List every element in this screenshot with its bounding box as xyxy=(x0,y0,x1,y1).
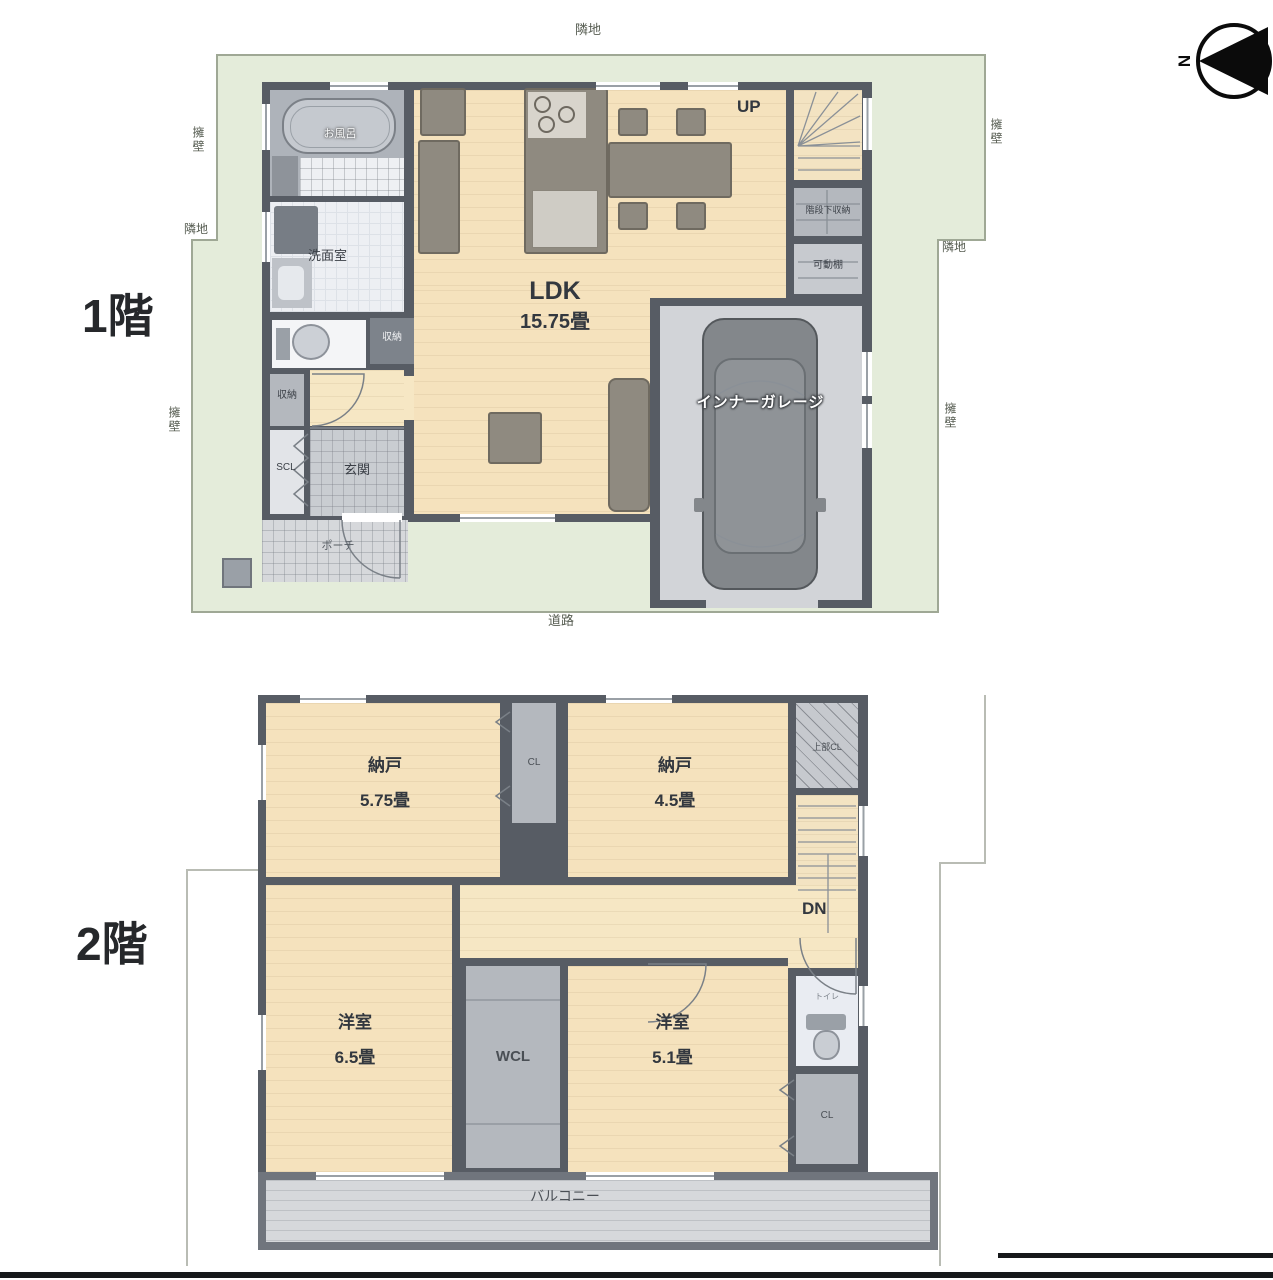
stove-burner-1 xyxy=(534,96,551,113)
site-post xyxy=(222,558,252,588)
floor1-title: 1階 xyxy=(82,288,154,346)
label-closet-left: 収納 xyxy=(266,390,308,403)
site-label-road: 道路 xyxy=(548,613,574,629)
toilet-2f-tank xyxy=(806,1014,846,1030)
car-mirror-right xyxy=(816,498,826,512)
car-mirror-left xyxy=(694,498,704,512)
window-stairs2-right xyxy=(859,806,868,856)
door-gap-front xyxy=(342,513,402,522)
label-youshitsu2-size: 5.1畳 xyxy=(585,1047,760,1068)
site-label-left-lower: 擁壁 xyxy=(166,406,181,434)
label-genkan: 玄関 xyxy=(312,462,402,478)
car-roof xyxy=(714,358,806,554)
site-label-left-upper: 擁壁 xyxy=(190,126,205,154)
dining-table xyxy=(608,142,732,198)
site-label-left-mid: 隣地 xyxy=(184,222,208,237)
refrigerator xyxy=(420,88,466,136)
window-youshitsu1-bottom xyxy=(316,1172,444,1180)
room-hall-1f xyxy=(310,370,404,426)
kitchen-sink xyxy=(532,190,598,248)
label-garage: インナーガレージ xyxy=(668,394,853,413)
label-cl1: CL xyxy=(512,757,556,770)
room-youshitsu2 xyxy=(568,966,788,1172)
window-youshitsu1-left xyxy=(258,1015,266,1070)
label-youshitsu1: 洋室 xyxy=(270,1012,440,1033)
window-washroom-left xyxy=(262,212,270,262)
label-youshitsu1-size: 6.5畳 xyxy=(270,1047,440,1068)
toilet-1f-bowl xyxy=(292,324,330,360)
label-nando2-size: 4.5畳 xyxy=(590,790,760,811)
label-nando2: 納戸 xyxy=(590,755,760,776)
label-closet-hall: 収納 xyxy=(370,332,414,345)
window-dining-top xyxy=(688,82,738,90)
boundary-line-2f-left xyxy=(187,870,258,1266)
window-garage-right-1 xyxy=(862,352,872,396)
site-label-right-mid: 隣地 xyxy=(942,240,966,255)
dining-chair-2 xyxy=(676,108,706,136)
label-youshitsu2: 洋室 xyxy=(585,1012,760,1033)
floor2-title: 2階 xyxy=(76,916,148,974)
washing-machine xyxy=(274,206,318,254)
window-garage-right-2 xyxy=(862,404,872,448)
sofa xyxy=(608,378,650,512)
vanity-sink xyxy=(278,266,304,300)
window-nando1-top xyxy=(300,695,366,703)
bath-floor xyxy=(300,158,404,196)
dining-chair-1 xyxy=(618,108,648,136)
window-nando2-top xyxy=(606,695,672,703)
window-ldk-bottom xyxy=(460,514,555,522)
toilet-1f-tank xyxy=(276,328,290,360)
label-porch: ポーチ xyxy=(298,540,378,554)
compass-n-label: N xyxy=(1175,55,1194,67)
compass-needle xyxy=(1199,27,1268,95)
label-nando1: 納戸 xyxy=(300,755,470,776)
site-label-right-upper: 擁壁 xyxy=(988,118,1003,146)
label-upper-cl: 上部CL xyxy=(796,742,858,753)
scale-bar xyxy=(998,1253,1273,1258)
window-stairs-right xyxy=(863,98,872,150)
label-toilet-2f: トイレ xyxy=(796,992,858,1002)
room-wcl xyxy=(466,966,560,1168)
label-scl: SCL xyxy=(264,462,308,475)
north-arrow: N xyxy=(1175,25,1270,97)
kitchen-cabinet xyxy=(418,140,460,254)
compass-circle xyxy=(1198,25,1270,97)
window-youshitsu2-bottom xyxy=(586,1172,714,1180)
label-cl2: CL xyxy=(796,1110,858,1123)
label-under-stairs: 階段下収納 xyxy=(790,205,866,216)
bottom-border-line xyxy=(0,1272,1273,1278)
stove-burner-3 xyxy=(538,116,555,133)
toilet-2f-bowl xyxy=(813,1030,840,1060)
living-table xyxy=(488,412,542,464)
label-up: UP xyxy=(737,96,761,117)
room-stairs-1f xyxy=(794,90,862,180)
label-movable-shelf: 可動棚 xyxy=(792,260,864,273)
label-bath: お風呂 xyxy=(308,128,372,142)
bath-counter xyxy=(272,156,298,196)
window-nando1-left xyxy=(258,745,266,800)
dining-chair-3 xyxy=(618,202,648,230)
label-wcl: WCL xyxy=(466,1048,560,1067)
label-washroom: 洗面室 xyxy=(308,248,347,264)
label-ldk-size: 15.75畳 xyxy=(470,310,640,335)
window-toilet2-right xyxy=(859,986,868,1026)
label-nando1-size: 5.75畳 xyxy=(300,790,470,811)
window-bath-top xyxy=(330,82,388,90)
door-gap-hall-ldk xyxy=(404,376,414,420)
boundary-line-2f-right xyxy=(940,695,985,1266)
window-kitchen-top xyxy=(596,82,660,90)
window-bath-left xyxy=(262,104,270,150)
site-label-top: 隣地 xyxy=(575,22,601,38)
dining-chair-4 xyxy=(676,202,706,230)
stove-burner-2 xyxy=(558,106,575,123)
label-dn: DN xyxy=(802,898,827,919)
floor-plan-canvas: N 1階 2階 隣地 道路 擁壁 隣地 擁壁 擁壁 隣地 擁壁 お風呂 洗面室 … xyxy=(0,0,1273,1280)
label-ldk: LDK xyxy=(470,276,640,307)
site-label-right-lower: 擁壁 xyxy=(942,402,957,430)
garage-opening xyxy=(706,598,818,608)
label-balcony: バルコニー xyxy=(430,1188,700,1206)
